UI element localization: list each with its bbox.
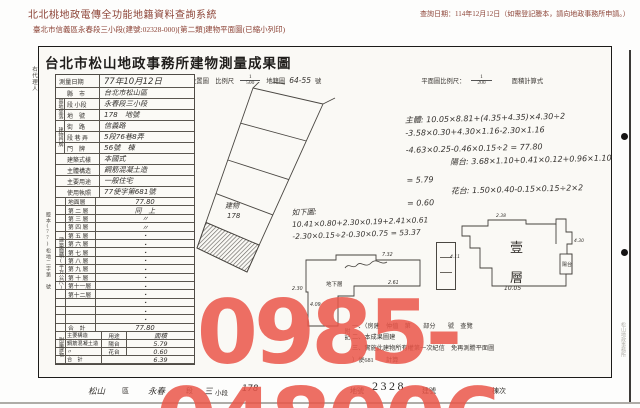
basement-calculation-notes: 如下圖:10.41×0.80+2.30×0.19+2.41×0.61-2.30×… <box>291 201 467 243</box>
footer-section-label: 段 <box>186 386 193 396</box>
attached-use: 陽台 <box>102 340 127 348</box>
group-label-site: 基地坐落 <box>56 98 65 120</box>
info-value: 台北市松山區 <box>100 88 194 98</box>
info-value: 5段76巷8弄 <box>100 132 194 142</box>
plan-scale-fraction: 1 200 <box>471 75 491 87</box>
floor-plan-big-label: 層 <box>510 270 523 285</box>
remark-line: ）使681 計算 <box>352 355 604 366</box>
binder-dot-icon <box>621 133 628 140</box>
footer-subsection-label: 小段 <box>215 387 228 397</box>
remark-line: 三、實施此建物所有權第一次紀信 免再測謄平面圖 <box>352 343 604 354</box>
info-row: 街 路 信義路 <box>56 121 194 132</box>
basement-dim: 2.30 <box>292 286 303 292</box>
info-label: 主要用途 <box>56 176 100 186</box>
remarks-block: 一、（房建 仲值 第 部分 號 查覽二、本成果圖建三、實施此建物所有權第一次紀信… <box>352 321 604 366</box>
survey-date-row: 測量日期 77年10月12日 <box>56 75 194 88</box>
map-label-building: 建物 <box>225 202 240 210</box>
attached-row: 合 計 6.39 <box>56 356 194 364</box>
attached-area: 6.39 <box>127 356 194 364</box>
info-row: 段 巷 弄 5段76巷8弄 <box>56 132 194 143</box>
survey-date-value: 77年10月12日 <box>100 75 194 87</box>
info-row: 門 牌 56號 棟 <box>56 143 194 154</box>
footer-lot-label: 地號 <box>350 386 364 396</box>
footer-building-label: 建號 <box>422 386 436 396</box>
group-label-door-plate: 建物門牌 <box>56 120 65 153</box>
attached-use: 花台 <box>102 348 127 356</box>
info-rows: 縣 市 台北市松山區 段 小段 永春段三小段 地 號 178 地號 街 路 信義… <box>56 88 194 198</box>
floor-plan-big-label: 壹 <box>510 240 523 255</box>
floor-plan-dim-bottom: 10.05 <box>504 285 521 292</box>
info-row: 主要用途 一般住宅 <box>56 176 194 187</box>
margin-note-transcript: 謄本(77)松地二字第 號 <box>44 212 51 312</box>
building-info-table: 測量日期 77年10月12日 縣 市 台北市松山區 段 小段 永春段三小段 地 … <box>55 74 195 365</box>
info-row: 段 小段 永春段三小段 <box>56 99 194 110</box>
page-edge-line <box>629 50 631 402</box>
group-label-attached: 附屬建物 <box>56 331 66 363</box>
info-row: 建築式樣 本國式 <box>56 154 194 165</box>
remark-line: 一、（房建 仲值 第 部分 號 查覽 <box>352 321 604 332</box>
info-label: 建築式樣 <box>56 154 100 164</box>
area-calc-label: 面積計算式 <box>512 76 543 85</box>
info-value: 56號 棟 <box>100 143 194 153</box>
footer-building-number-stamp: 2328 <box>372 379 406 394</box>
attached-area: 0.60 <box>127 348 194 356</box>
office-edge-stamp: 松山地政事務所 <box>619 322 626 374</box>
binder-dot-icon <box>621 249 628 256</box>
info-label: 縣 市 <box>56 88 100 98</box>
group-label-floor-area: 建築面積(平方公尺) <box>56 197 66 331</box>
info-row: 縣 市 台北市松山區 <box>56 88 194 99</box>
balcony-label: 陽台 <box>562 261 572 268</box>
query-date: 查詢日期：114年12月12日（如需登記謄本，請向地政事務所申請。） <box>420 9 630 19</box>
survey-date-label: 測量日期 <box>56 75 100 87</box>
fraction-denominator: 200 <box>471 80 491 87</box>
floor-plan-dim: 2.38 <box>496 213 506 219</box>
system-title: 北北桃地政電傳全功能地籍資料查詢系統 <box>28 6 217 21</box>
info-value: 本國式 <box>100 154 194 164</box>
info-value: 永春段三小段 <box>100 99 194 109</box>
document-title: 台北市松山地政事務所建物測量成果圖 <box>45 52 292 72</box>
map-label-lot-number: 178 <box>227 212 241 220</box>
margin-note-agent: 右代理人 <box>30 66 38 106</box>
info-value: 信義路 <box>100 121 194 131</box>
info-value: 178 地號 <box>100 110 194 120</box>
footer-lot-value: 178 <box>242 384 258 394</box>
info-label: 主體構造 <box>56 165 100 175</box>
attached-area: 5.79 <box>127 340 194 348</box>
remark-line: 二、本成果圖建 <box>352 332 604 343</box>
scanned-query-page: 北北桃地政電傳全功能地籍資料查詢系統 查詢日期：114年12月12日（如需登記謄… <box>0 0 640 408</box>
page-bottom-rule <box>0 402 640 404</box>
plan-scale-label: 平面圖比例尺： <box>421 76 465 85</box>
info-value: 一般住宅 <box>100 176 194 186</box>
info-value: 77使字第681號 <box>100 187 194 197</box>
floor-plan-dim: 4.11 <box>450 254 460 260</box>
floor-area-rows: 地面層 77.80 第 二 層 同 上 第 三 層 〃 第 四 層 〃 <box>56 198 194 332</box>
footer-unit-label: 棟次 <box>492 386 506 396</box>
info-row: 主體構造 鋼筋混凝土造 <box>56 165 194 176</box>
footer-district-label: 區 <box>122 386 129 396</box>
info-label: 使用執照 <box>56 187 100 197</box>
footer-district-value: 松山 <box>88 385 105 397</box>
basement-dim: 7.32 <box>382 252 393 258</box>
footer-section-value: 永春 <box>148 385 165 397</box>
info-value: 鋼筋混凝土造 <box>100 165 194 175</box>
footer-subsection-value: 三 <box>204 385 213 397</box>
attached-building-rows: 主要構造 用途 面積 鋼筋混凝土造 陽台 5.79 〃 花台 0.60 <box>56 332 194 364</box>
floor-plan-dim: 4.30 <box>574 238 584 244</box>
attached-use: 用途 <box>102 332 127 340</box>
basement-dim: 2.61 <box>388 280 399 286</box>
document-identifier-line: 臺北市信義區永春段三小段(建號:02328-000)[第二類]建物平面圖(已縮小… <box>33 24 285 35</box>
remarks-label: 附記 <box>342 328 351 340</box>
first-floor-plan-drawing: 壹 層 10.05 陽台 2.38 4.30 4.11 <box>448 210 588 305</box>
basement-label: 地下層 <box>326 280 343 288</box>
area-calculation-notes: 主體: 10.05×8.81+(4.35+4.35)×4.30÷2-3.58×0… <box>405 109 625 210</box>
basement-dim: 4.09 <box>310 302 321 308</box>
info-row: 地 號 178 地號 <box>56 110 194 121</box>
